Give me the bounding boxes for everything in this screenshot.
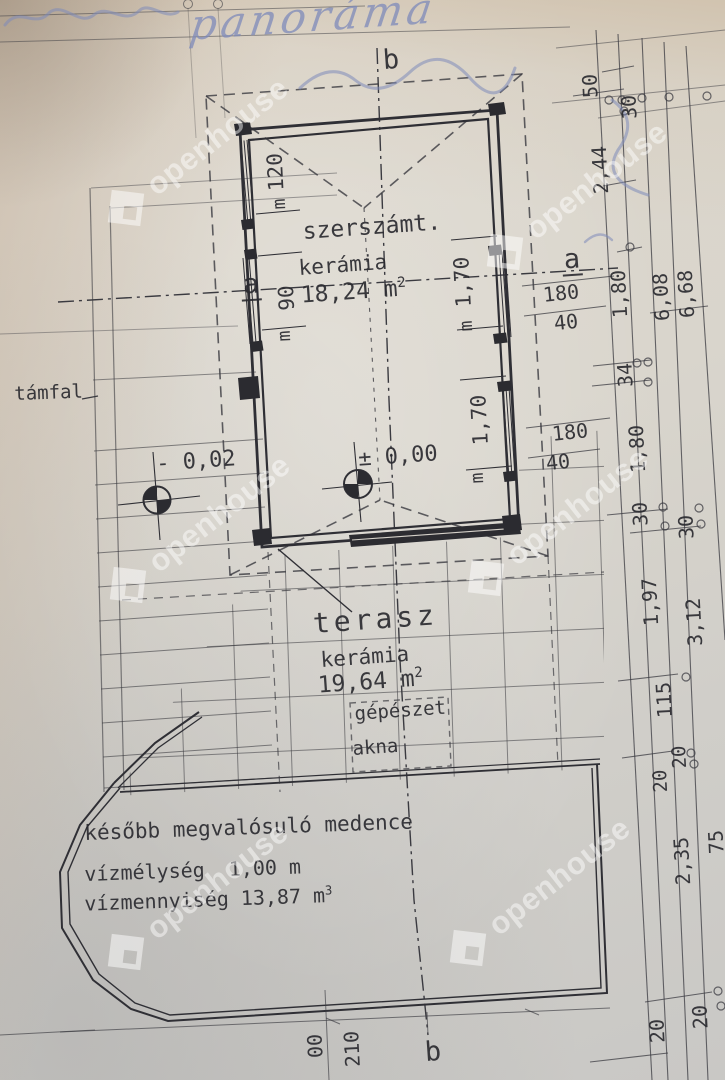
dimension-label: 20: [670, 745, 690, 769]
retaining-wall-label: támfal: [14, 383, 83, 404]
dimension-label: 115: [653, 681, 675, 718]
dimension-label: 1,80: [608, 269, 630, 318]
axis-a-left: a: [240, 270, 262, 301]
dimension-label: 180: [551, 420, 589, 444]
dimension-label: 30: [629, 501, 650, 526]
dimension-label: 75: [705, 829, 725, 854]
window-dim-2: 90: [276, 285, 298, 311]
dimension-label: 20: [646, 1018, 667, 1043]
dimension-label: 3,12: [683, 597, 705, 646]
dimension-label: 1,97: [639, 577, 661, 626]
dimension-label: 6,08: [650, 272, 672, 321]
window-dim-3-m: m: [458, 320, 477, 332]
dimension-label: 2,35: [671, 836, 693, 885]
window-dim-3: 1,70: [451, 256, 475, 308]
elevation-main: ± 0,00: [358, 443, 439, 470]
elevation-terrace: - 0,02: [156, 448, 237, 475]
mechanical-shaft-label-2: akna: [352, 737, 399, 759]
dimension-label: 180: [542, 281, 580, 305]
dimension-label: 20: [689, 1004, 710, 1029]
dimension-label: 30: [675, 514, 696, 539]
window-dim-2-m: m: [276, 330, 295, 342]
dimension-label: 20: [651, 769, 671, 793]
dimension-label: 6,68: [675, 269, 697, 318]
axis-a-right: a: [561, 245, 583, 276]
axis-b-bottom: b: [424, 1038, 442, 1066]
dimension-label: 00: [304, 1033, 325, 1058]
window-dim-1-m: m: [271, 198, 290, 210]
axis-b-top: b: [382, 46, 400, 74]
dimension-label: 40: [553, 311, 579, 333]
window-dim-4-m: m: [469, 472, 488, 484]
room-name-terrace: terasz: [312, 601, 439, 638]
dimension-label: 50: [579, 73, 600, 98]
window-dim-1: 120: [265, 153, 288, 192]
dimension-label: 34: [614, 362, 635, 387]
dimension-label: 30: [618, 94, 639, 119]
window-dim-4: 1,70: [468, 394, 492, 446]
dimension-label: 40: [545, 451, 571, 473]
floor-plan-photo: panoráma szerszámt. kerámia 18,24 m2 ter…: [0, 0, 725, 1080]
dimension-label: 210: [341, 1030, 363, 1067]
